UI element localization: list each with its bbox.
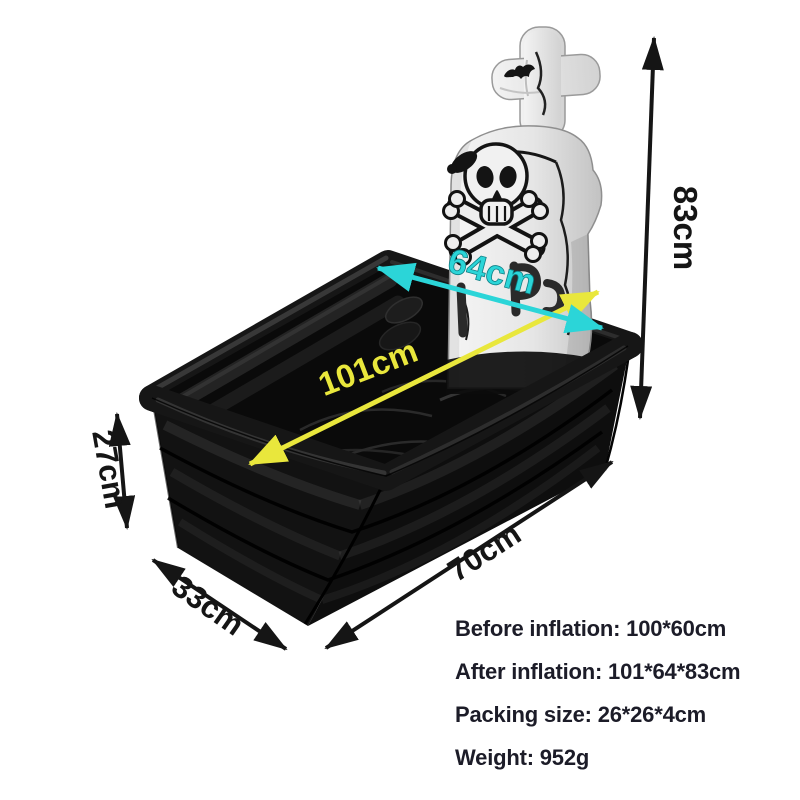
deflated-prop — [447, 164, 457, 174]
inflatable-tombstone — [444, 27, 602, 394]
height-arrow — [640, 38, 654, 418]
dimension-wall-height: 27cm — [85, 414, 133, 528]
spec-after-inflation: After inflation: 101*64*83cm — [455, 650, 740, 693]
spec-packing-size: Packing size: 26*26*4cm — [455, 693, 740, 736]
height-label: 83cm — [667, 186, 704, 270]
wall-height-label: 27cm — [85, 427, 133, 511]
product-image: 83cm 27cm 33cm 70cm 101cm 64cm Before in… — [0, 0, 800, 800]
dimension-height: 83cm — [640, 38, 704, 418]
product-specs: Before inflation: 100*60cm After inflati… — [455, 607, 740, 779]
cross-topper — [491, 27, 602, 139]
spec-before-inflation: Before inflation: 100*60cm — [455, 607, 740, 650]
spec-weight: Weight: 952g — [455, 736, 740, 779]
